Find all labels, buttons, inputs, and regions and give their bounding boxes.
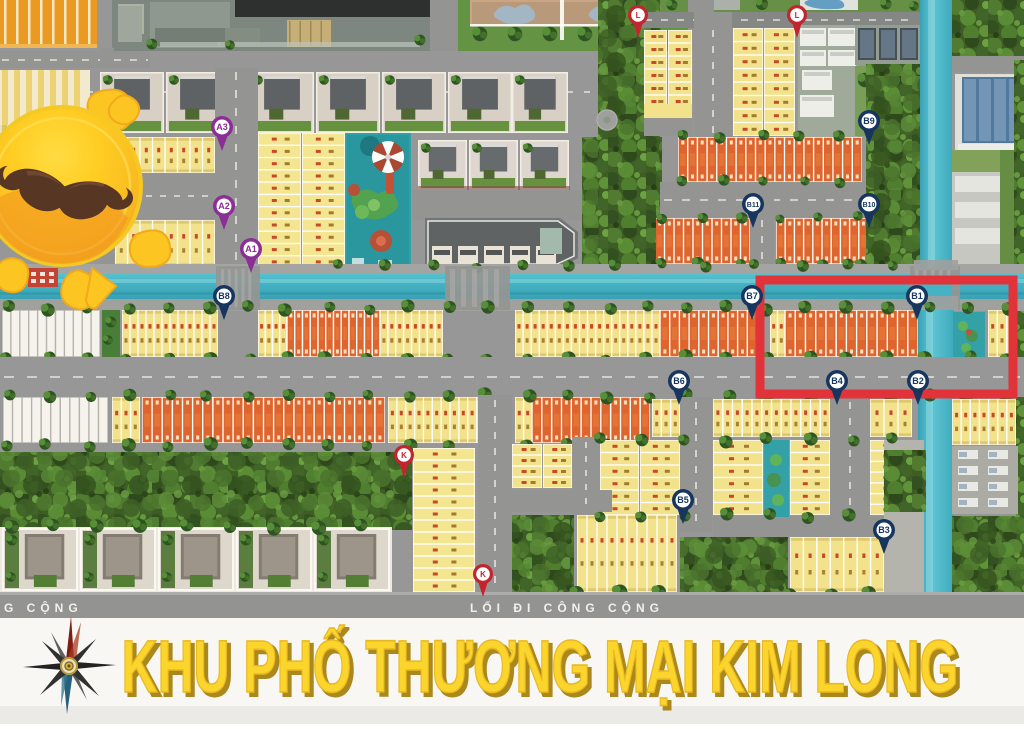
svg-text:B4: B4: [831, 376, 843, 386]
svg-text:B9: B9: [863, 116, 875, 126]
svg-text:KHU PHỐ THƯƠNG MẠI KIM LONG: KHU PHỐ THƯƠNG MẠI KIM LONG: [122, 625, 959, 708]
svg-text:K: K: [480, 570, 486, 579]
svg-text:B7: B7: [746, 291, 758, 301]
svg-text:K: K: [401, 451, 407, 460]
svg-text:L: L: [636, 11, 641, 20]
svg-text:L: L: [795, 11, 800, 20]
svg-text:A1: A1: [245, 244, 257, 254]
svg-text:B3: B3: [878, 525, 890, 535]
svg-text:B5: B5: [677, 495, 689, 505]
svg-text:B8: B8: [218, 291, 230, 301]
svg-text:A2: A2: [218, 201, 230, 211]
svg-text:B10: B10: [863, 202, 876, 209]
svg-text:A3: A3: [216, 122, 228, 132]
svg-text:B11: B11: [747, 202, 760, 209]
svg-text:B1: B1: [911, 291, 923, 301]
svg-text:B2: B2: [912, 376, 924, 386]
svg-text:B6: B6: [673, 376, 685, 386]
